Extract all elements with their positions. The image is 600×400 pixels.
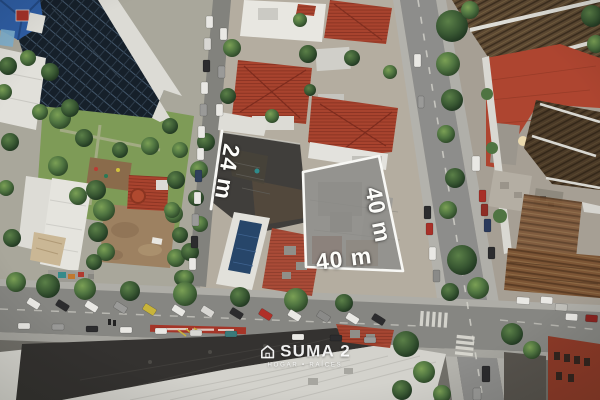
watermark: SUMA 2 HOGAR • RAÍCES	[259, 342, 351, 369]
watermark-brand: SUMA 2	[280, 342, 351, 362]
aerial-photo-background	[0, 0, 600, 400]
watermark-tagline: HOGAR • RAÍCES	[268, 363, 343, 369]
aerial-listing-image: 24 m 40 m 40 m SUMA 2 HOGAR • RAÍCES	[0, 0, 600, 400]
house-icon	[259, 343, 276, 360]
